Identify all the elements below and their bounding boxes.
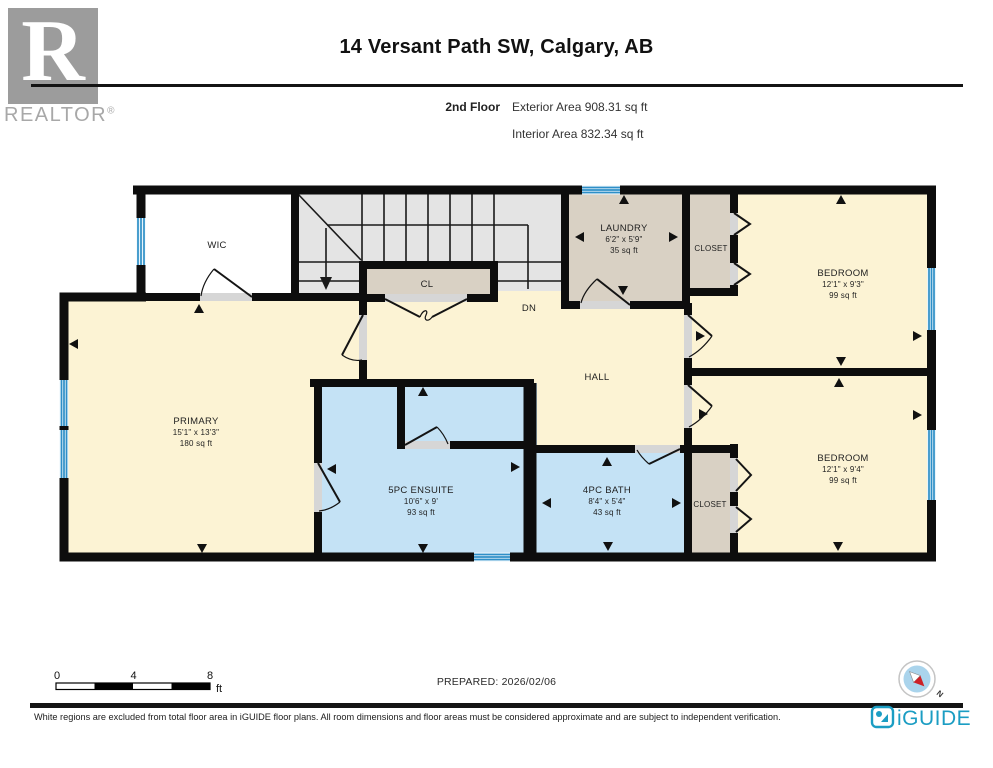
wic-door-leaf <box>214 269 252 297</box>
registered-trademark-icon: ® <box>107 105 116 116</box>
closet-top-gap-2 <box>730 263 738 285</box>
room-label-cl: CL <box>421 279 434 290</box>
laundry-door-gap <box>580 301 630 309</box>
footer-disclaimer: White regions are excluded from total fl… <box>34 712 834 722</box>
floor-plan: WIC LAUNDRY 6'2" x 5'9" 35 sq ft CLOSET … <box>0 0 993 768</box>
room-label-hall: HALL <box>585 372 610 383</box>
room-label-bath: 4PC BATH <box>583 485 631 496</box>
room-label-bedroom1: BEDROOM <box>817 268 868 279</box>
iguide-logo: iGUIDE <box>870 702 985 732</box>
window-wic <box>137 218 146 265</box>
stairs-down-label: DN <box>522 303 536 314</box>
window-bedroom1 <box>927 268 936 330</box>
window-primary-2 <box>60 430 69 478</box>
closet-bottom-gap-2 <box>730 506 738 533</box>
footer-divider <box>30 703 963 708</box>
wic-door-arc <box>201 269 214 296</box>
room-dims-bath: 8'4" x 5'4" <box>588 497 625 506</box>
window-top <box>582 186 620 195</box>
window-bedroom2 <box>927 430 936 500</box>
prepared-date: PREPARED: 2026/02/06 <box>0 676 993 688</box>
ensuite-door-gap <box>314 463 322 512</box>
room-area-bedroom2: 99 sq ft <box>829 476 857 485</box>
room-dims-laundry: 6'2" x 5'9" <box>605 235 642 244</box>
room-label-wic: WIC <box>207 240 226 251</box>
room-area-bedroom1: 99 sq ft <box>829 291 857 300</box>
room-area-ensuite: 93 sq ft <box>407 508 435 517</box>
iguide-logo-icon <box>872 707 893 727</box>
stairs-right-fill <box>497 190 561 291</box>
window-primary-1 <box>60 380 69 426</box>
closet-bottom-gap-1 <box>730 458 738 492</box>
compass-north-label: N <box>935 689 945 700</box>
wic-door-gap <box>200 293 252 301</box>
room-area-laundry: 35 sq ft <box>610 246 638 255</box>
room-label-primary: PRIMARY <box>173 416 219 427</box>
room-area-bath: 43 sq ft <box>593 508 621 517</box>
page-title: 14 Versant Path SW, Calgary, AB <box>0 36 993 59</box>
closet-top-gap-1 <box>730 213 738 235</box>
room-dims-ensuite: 10'6" x 9' <box>404 497 438 506</box>
exterior-area-label: Exterior Area 908.31 sq ft <box>512 100 647 114</box>
iguide-logo-text: iGUIDE <box>897 707 971 730</box>
room-dims-bedroom2: 12'1" x 9'4" <box>822 465 864 474</box>
room-dims-primary: 15'1" x 13'3" <box>173 428 219 437</box>
room-label-closet-top: CLOSET <box>694 244 727 253</box>
room-label-bedroom2: BEDROOM <box>817 453 868 464</box>
interior-area-label: Interior Area 832.34 sq ft <box>512 127 643 141</box>
realtor-logo-text: REALTOR® <box>4 104 116 127</box>
room-dims-bedroom1: 12'1" x 9'3" <box>822 280 864 289</box>
ensuite-fill <box>318 383 537 557</box>
room-area-primary: 180 sq ft <box>180 439 213 448</box>
room-label-closet-bottom: CLOSET <box>693 500 726 509</box>
bedroom1-door-gap <box>684 315 692 358</box>
bedroom2-door-gap <box>684 385 692 428</box>
header-divider <box>31 84 963 87</box>
cl-door-gap <box>385 294 467 302</box>
room-label-ensuite: 5PC ENSUITE <box>388 485 454 496</box>
window-ensuite <box>474 553 510 562</box>
floor-label: 2nd Floor <box>330 100 500 114</box>
room-label-laundry: LAUNDRY <box>600 223 648 234</box>
